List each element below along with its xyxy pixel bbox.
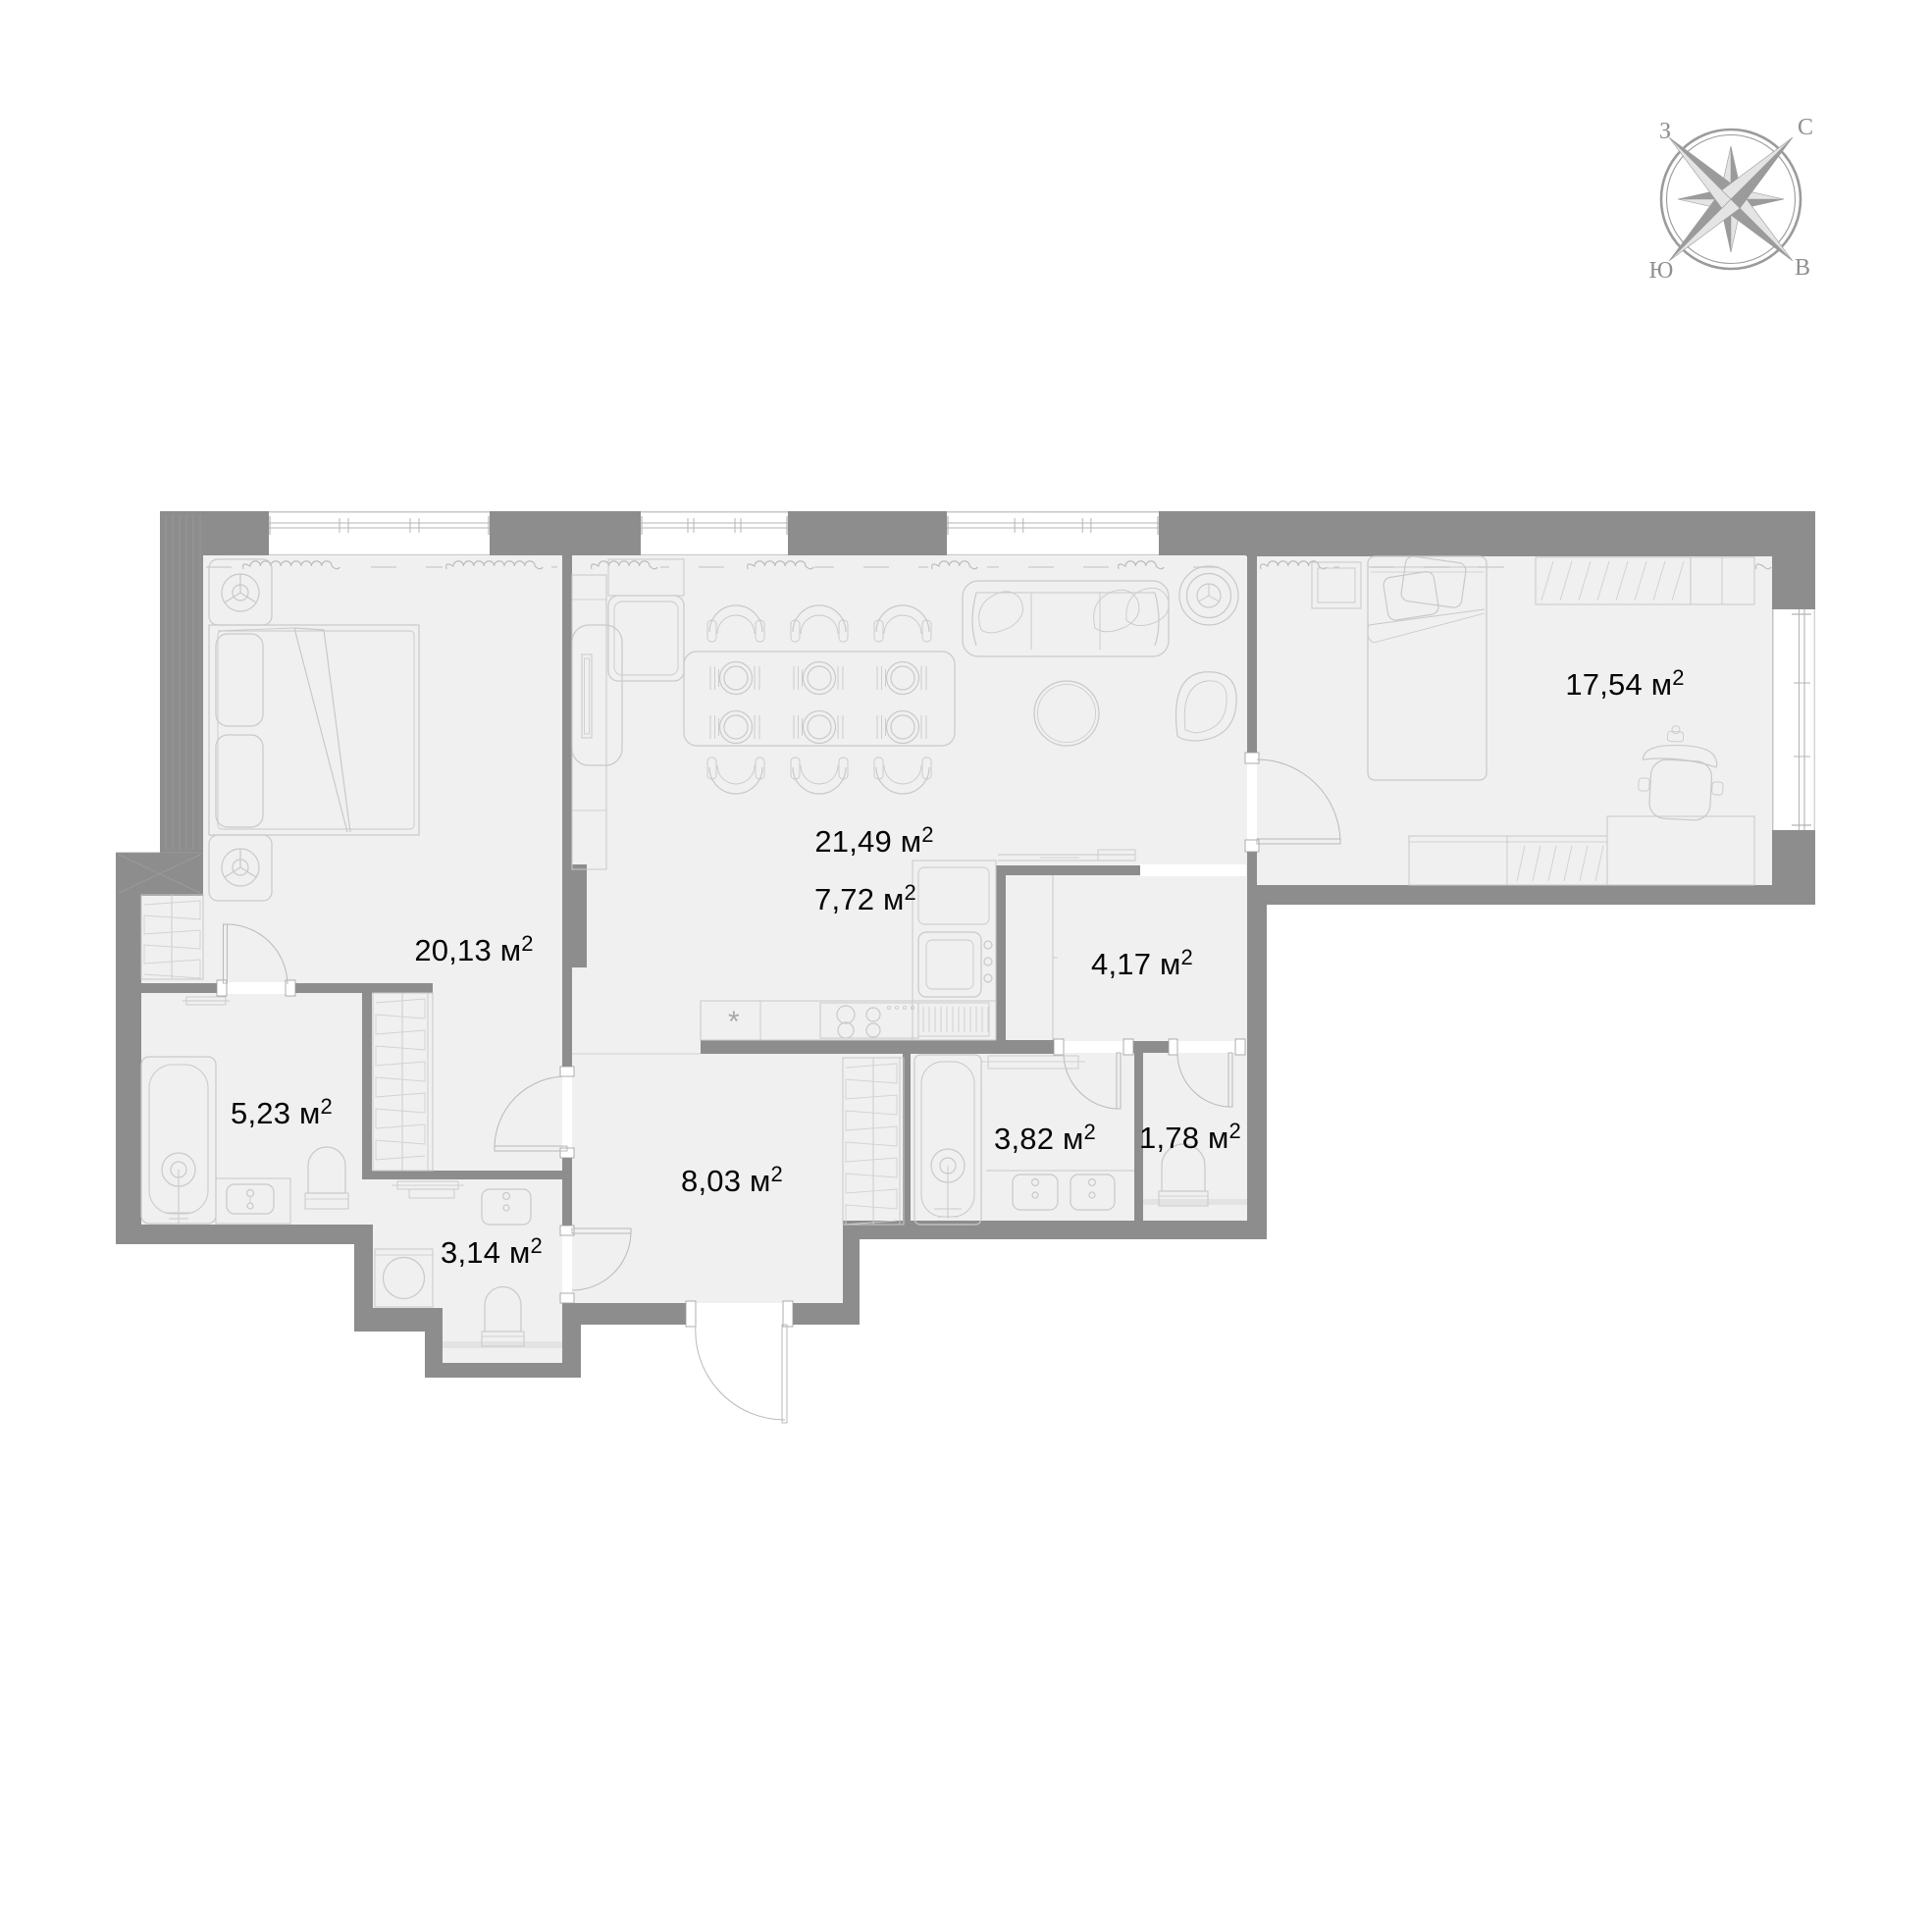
svg-text:3,14 м2: 3,14 м2 xyxy=(441,1233,543,1270)
svg-text:21,49 м2: 21,49 м2 xyxy=(814,822,933,859)
svg-text:20,13 м2: 20,13 м2 xyxy=(414,931,533,967)
svg-text:С: С xyxy=(1798,115,1813,140)
svg-text:*: * xyxy=(728,1006,740,1038)
svg-text:Ю: Ю xyxy=(1649,258,1674,284)
svg-text:17,54 м2: 17,54 м2 xyxy=(1565,665,1684,702)
svg-text:8,03 м2: 8,03 м2 xyxy=(681,1162,783,1198)
svg-text:7,72 м2: 7,72 м2 xyxy=(814,880,916,916)
svg-text:З: З xyxy=(1659,119,1671,144)
svg-text:3,82 м2: 3,82 м2 xyxy=(994,1120,1096,1156)
svg-text:4,17 м2: 4,17 м2 xyxy=(1091,945,1193,981)
svg-text:5,23 м2: 5,23 м2 xyxy=(231,1094,333,1130)
svg-text:1,78 м2: 1,78 м2 xyxy=(1139,1119,1241,1155)
svg-text:В: В xyxy=(1795,255,1810,281)
